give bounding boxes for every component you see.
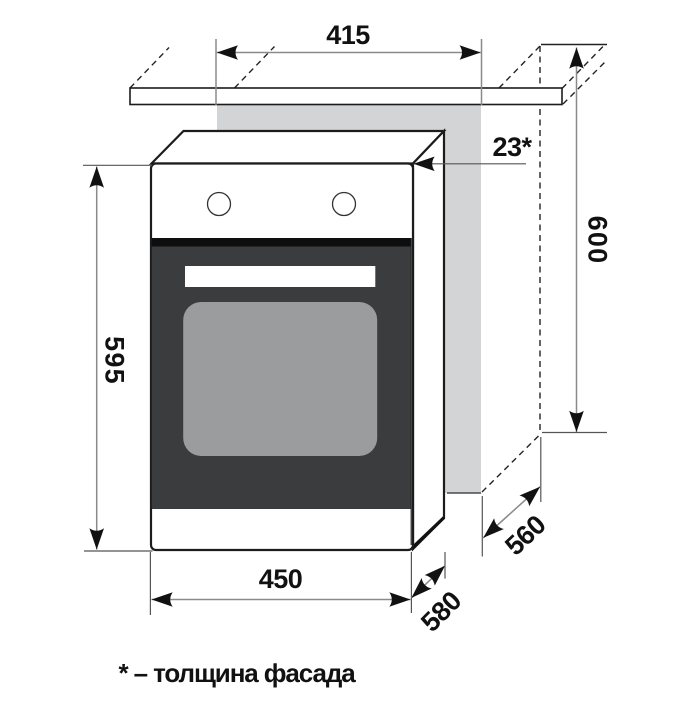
svg-text:415: 415	[326, 20, 370, 50]
svg-text:450: 450	[259, 564, 303, 594]
svg-text:600: 600	[583, 216, 613, 265]
svg-text:23*: 23*	[492, 132, 532, 162]
svg-text:595: 595	[100, 336, 130, 385]
svg-text:* – толщина фасада: * – толщина фасада	[119, 658, 357, 688]
